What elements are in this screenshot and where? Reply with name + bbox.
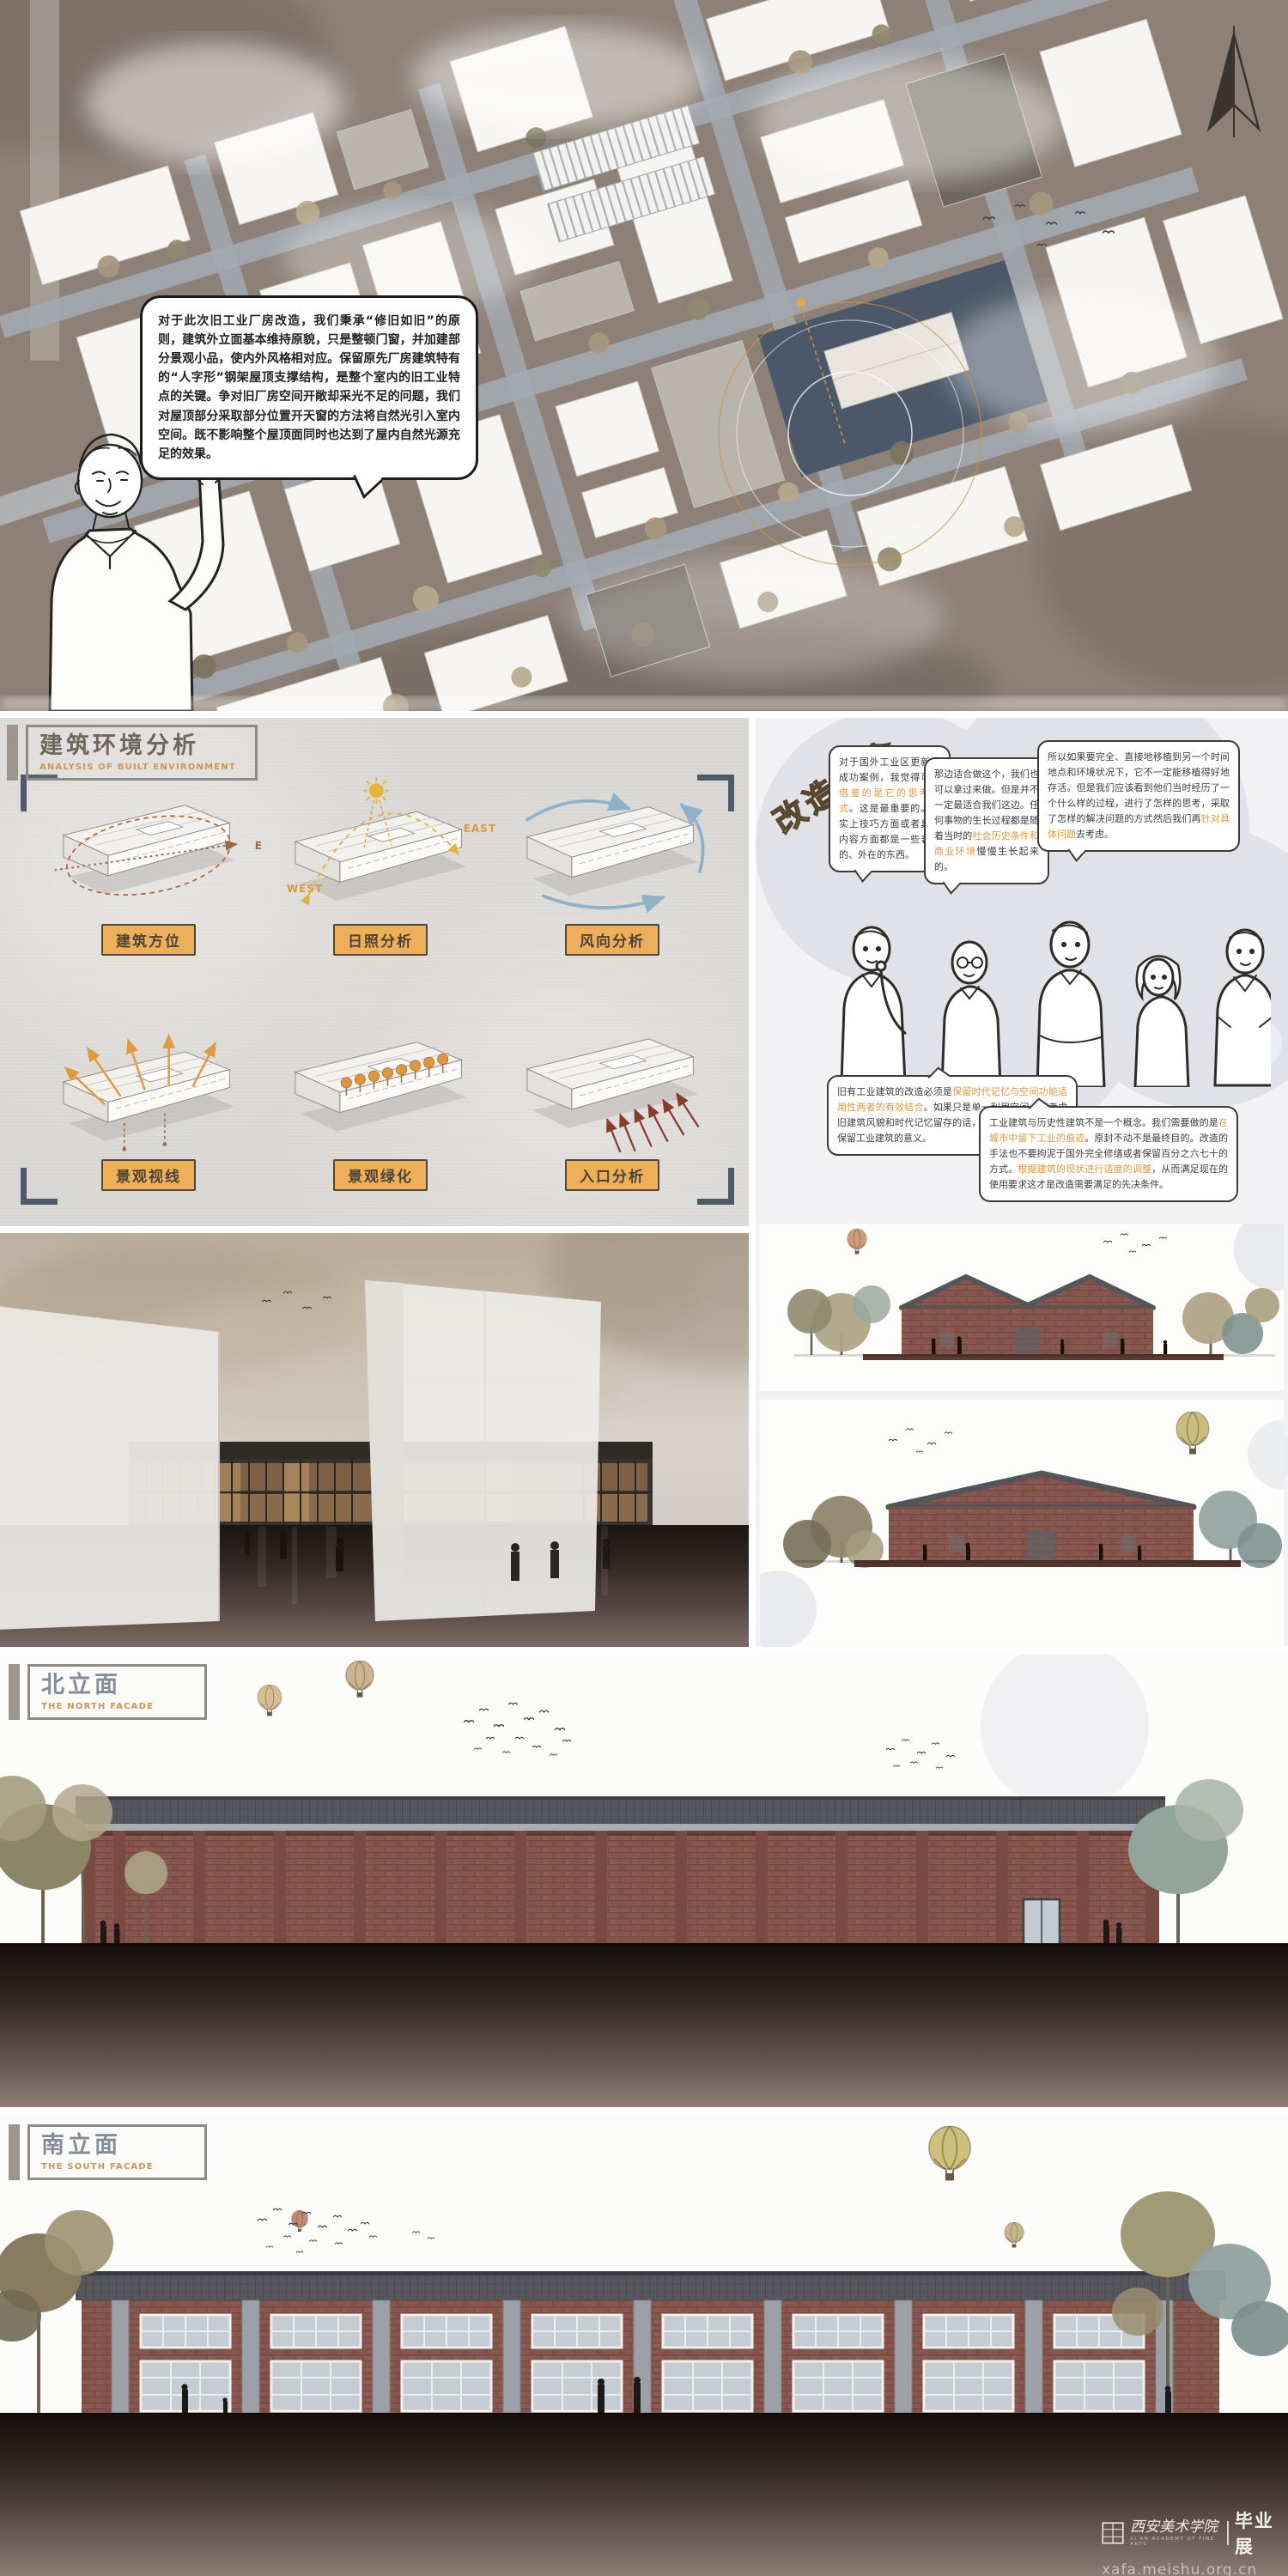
diagram-wind-analysis: 风向分析 xyxy=(496,773,728,956)
south-header: 南立面 THE SOUTH FACADE xyxy=(9,2124,207,2180)
diagram-label: 风向分析 xyxy=(565,924,659,956)
header-box: 北立面 THE NORTH FACADE xyxy=(27,1664,207,1720)
poster-root: 对于此次旧工业厂房改造，我们秉承“修旧如旧”的原则，建筑外立面基本维持原貌，只是… xyxy=(0,0,1288,2576)
concept-section: 改造理念 xyxy=(756,718,1288,1647)
school-seal-icon xyxy=(1102,2520,1124,2546)
concept-render-2 xyxy=(760,1400,1284,1647)
south-facade-section: 南立面 THE SOUTH FACADE xyxy=(0,2114,1288,2576)
south-subtitle: THE SOUTH FACADE xyxy=(41,2162,185,2172)
diagram-art xyxy=(37,1008,260,1152)
analysis-subtitle: ANALYSIS OF BUILT ENVIRONMENT xyxy=(39,762,236,772)
diagram-label: 景观视线 xyxy=(101,1159,196,1191)
corner-bracket-icon xyxy=(697,1168,734,1205)
header-bar xyxy=(7,725,18,781)
corner-bracket-icon xyxy=(697,775,734,811)
exhibition-logo: 西安美术学院 XI'AN ACADEMY OF FINE ARTS 毕业展 xa… xyxy=(1102,2507,1286,2576)
diagram-sunlight-analysis: WEST EAST 日照分析 xyxy=(264,773,496,956)
north-facade-art xyxy=(0,1654,1288,2107)
discussion-people-sketch xyxy=(807,881,1271,1087)
east-direction-label: E xyxy=(255,840,263,852)
site-plan-speech-bubble: 对于此次旧工业厂房改造，我们秉承“修旧如旧”的原则，建筑外立面基本维持原貌，只是… xyxy=(140,295,478,480)
diagram-label: 景观绿化 xyxy=(333,1159,428,1191)
header-box: 建筑环境分析 ANALYSIS OF BUILT ENVIRONMENT xyxy=(26,725,258,781)
east-direction-label: EAST xyxy=(464,823,496,835)
diagram-landscape-greening: 景观绿化 xyxy=(264,1008,496,1191)
diagram-entrance-analysis: 入口分析 xyxy=(496,1008,728,1191)
diagram-art xyxy=(501,1008,724,1152)
logo-divider xyxy=(1227,2521,1229,2545)
exhibition-url: xafa.meishu.org.cn xyxy=(1102,2561,1286,2576)
corner-bracket-icon xyxy=(21,1168,58,1205)
diagram-art xyxy=(269,773,492,917)
north-header: 北立面 THE NORTH FACADE xyxy=(9,1664,207,1720)
brick-building xyxy=(76,2271,1225,2413)
school-name-en: XI'AN ACADEMY OF FINE ARTS xyxy=(1130,2537,1221,2547)
white-monolith-left xyxy=(0,1306,219,1630)
diagram-art xyxy=(269,1008,492,1152)
diagram-building-orientation: E 建筑方位 xyxy=(33,773,264,956)
north-title: 北立面 xyxy=(41,1673,185,1698)
north-facade-section: 北立面 THE NORTH FACADE xyxy=(0,1654,1288,2107)
diagram-art xyxy=(501,773,724,917)
header-bar xyxy=(9,1664,20,1720)
school-name: 西安美术学院 xyxy=(1130,2520,1221,2535)
diagram-label: 入口分析 xyxy=(565,1159,659,1191)
ground-band xyxy=(0,2415,1288,2576)
analysis-header: 建筑环境分析 ANALYSIS OF BUILT ENVIRONMENT xyxy=(7,725,258,781)
speech-text: 对于此次旧工业厂房改造，我们秉承“修旧如旧”的原则，建筑外立面基本维持原貌，只是… xyxy=(158,314,460,461)
concept-render-1 xyxy=(760,1224,1284,1391)
diagram-label: 建筑方位 xyxy=(101,924,196,956)
south-facade-art xyxy=(0,2114,1288,2576)
concept-bubble-2: 那边适合做这个，我们也可以拿过来做。但是并不一定最适合我们这边。任何事物的生长过… xyxy=(924,757,1049,884)
diagram-art xyxy=(37,773,260,917)
south-title: 南立面 xyxy=(41,2133,185,2159)
diagram-view-corridors: 景观视线 xyxy=(33,1008,264,1191)
exhibition-label: 毕业展 xyxy=(1235,2507,1286,2559)
analysis-title: 建筑环境分析 xyxy=(39,733,236,759)
concept-bubble-5: 工业建筑与历史性建筑不是一个概念。我们需要做的是在城市中留下工业的痕迹。原封不动… xyxy=(979,1106,1238,1202)
header-bar xyxy=(9,2124,20,2180)
diagram-label: 日照分析 xyxy=(333,924,428,956)
west-direction-label: WEST xyxy=(287,883,323,895)
ground-band xyxy=(0,1945,1288,2107)
north-subtitle: THE NORTH FACADE xyxy=(41,1702,185,1711)
perspective-render-section xyxy=(0,1233,749,1647)
brick-building xyxy=(76,1796,1165,1945)
site-plan-section: 对于此次旧工业厂房改造，我们秉承“修旧如旧”的原则，建筑外立面基本维持原貌，只是… xyxy=(0,0,1288,711)
sun-icon xyxy=(363,778,389,804)
header-box: 南立面 THE SOUTH FACADE xyxy=(27,2124,207,2180)
analysis-section: 建筑环境分析 ANALYSIS OF BUILT ENVIRONMENT E 建… xyxy=(0,718,749,1226)
perspective-art xyxy=(0,1233,749,1647)
concept-bubble-3: 所以如果要完全、直接地移植到另一个时间地点和环境状况下，它不一定能移植得好地存活… xyxy=(1037,740,1240,852)
